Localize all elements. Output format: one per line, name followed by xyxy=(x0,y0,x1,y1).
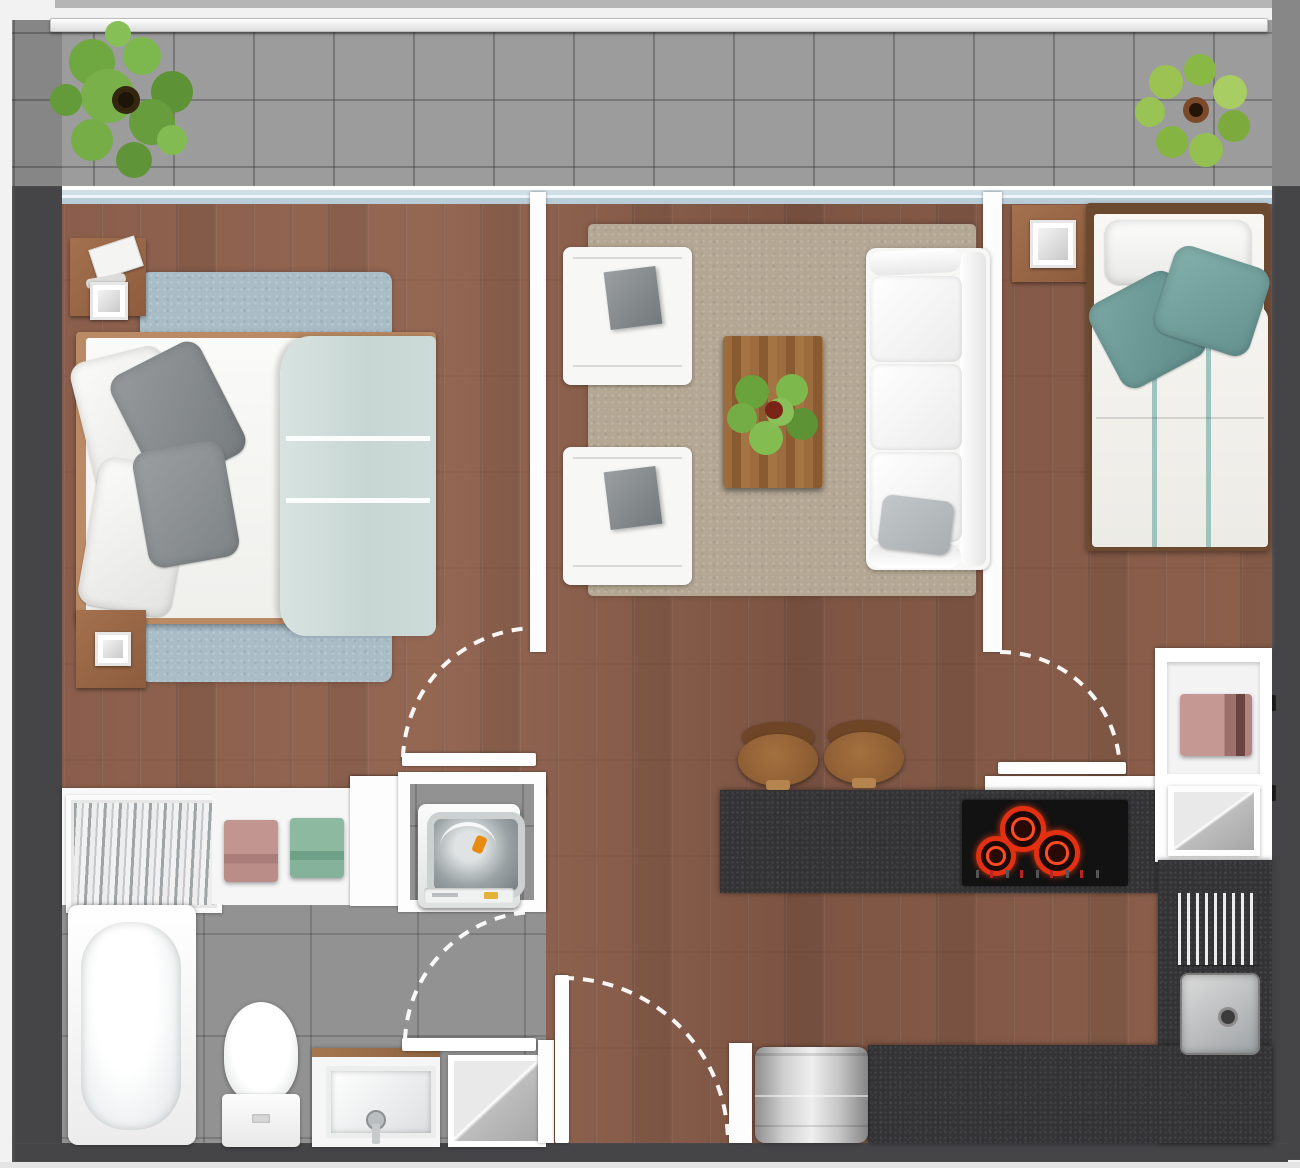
bedroom2-door-arc xyxy=(1000,652,1120,772)
balcony-plant-right xyxy=(1135,54,1250,167)
balcony-plant-left xyxy=(50,21,193,178)
bathroom-door-arc xyxy=(405,912,533,1040)
coffee-table-plant xyxy=(727,374,818,455)
bedroom1-door-arc xyxy=(403,628,537,757)
entry-door-arc xyxy=(563,978,728,1143)
overlay xyxy=(0,0,1300,1168)
floor-plan xyxy=(0,0,1300,1168)
door-swing-arcs xyxy=(403,628,1120,1143)
